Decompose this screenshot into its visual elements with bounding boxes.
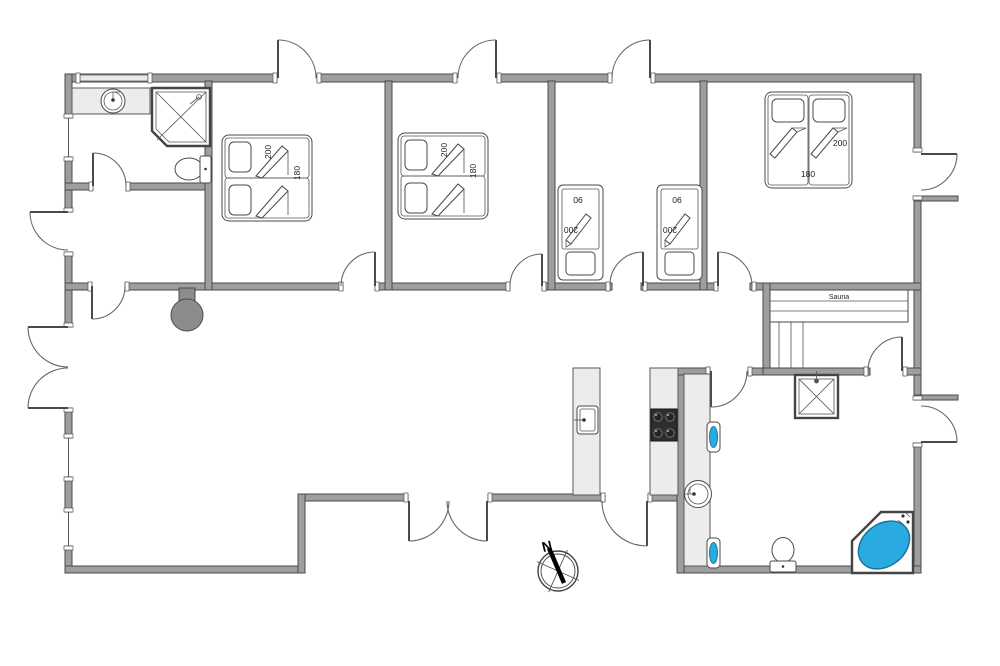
toilet-icon xyxy=(175,156,211,183)
wood-stove-icon xyxy=(171,288,203,331)
door-terrace-double-bottom xyxy=(28,368,68,408)
compass-rose: N xyxy=(528,537,589,601)
wall-basin-icon xyxy=(707,538,720,568)
corner-shower-icon xyxy=(152,88,210,146)
compass-needle xyxy=(549,548,564,583)
pillow xyxy=(665,252,694,275)
single1-length-label: 200 xyxy=(564,225,578,235)
pillow xyxy=(566,252,595,275)
double-bed-2: 200 180 xyxy=(398,133,488,219)
door-bathroom-top xyxy=(93,153,126,186)
bed2-length-label: 200 xyxy=(439,143,449,157)
pillow xyxy=(813,99,845,122)
door-patio-double-left xyxy=(409,501,449,541)
door-entry-exterior xyxy=(30,212,68,250)
pillow xyxy=(229,142,251,172)
sauna-steps xyxy=(779,322,803,368)
door-patio-single xyxy=(602,501,647,546)
door-annex-exterior xyxy=(612,40,650,78)
single-bed-1: 90 200 xyxy=(558,185,603,280)
door-living-from-hall xyxy=(92,286,125,319)
master-width-label: 180 xyxy=(801,169,815,179)
door-master-exterior xyxy=(921,154,957,190)
sauna: Sauna xyxy=(770,290,908,368)
bed2-width-label: 180 xyxy=(468,164,478,178)
door-patio-double-right xyxy=(447,501,487,541)
pillow xyxy=(229,185,251,215)
master-double-bed: 200 180 xyxy=(765,92,852,188)
pillow xyxy=(405,183,427,213)
stove-icon xyxy=(651,409,677,441)
pillow xyxy=(405,140,427,170)
door-bedroom2 xyxy=(510,254,542,286)
kitchen-sink-icon xyxy=(574,406,598,434)
sink-icon xyxy=(101,89,125,113)
floor-plan-canvas: 200 180 200 180 90 200 90 200 xyxy=(0,0,1000,666)
corner-bathtub-icon xyxy=(849,511,919,579)
door-annex xyxy=(610,252,643,286)
door-bedroom2-exterior xyxy=(458,40,496,78)
wall-basin-icon xyxy=(707,422,720,452)
kitchen xyxy=(573,368,678,495)
door-terrace-double-top xyxy=(28,327,68,367)
floor-plan: 200 180 200 180 90 200 90 200 xyxy=(0,0,1000,666)
double-bed-1: 200 180 xyxy=(222,135,312,221)
toilet-icon xyxy=(770,538,796,573)
bed1-width-label: 180 xyxy=(292,166,302,180)
bed1-length-label: 200 xyxy=(263,145,273,159)
door-bedroom1-exterior xyxy=(278,40,316,78)
round-sink-icon xyxy=(684,481,712,508)
compass-north-label: N xyxy=(540,537,554,555)
door-sauna xyxy=(868,337,902,371)
door-bedroom1 xyxy=(341,252,375,286)
pillow xyxy=(772,99,804,122)
door-bathroom-lower xyxy=(711,371,747,407)
single1-width-label: 90 xyxy=(573,195,583,205)
bathroom-counter xyxy=(684,374,710,566)
single2-width-label: 90 xyxy=(672,195,682,205)
single2-length-label: 200 xyxy=(663,225,677,235)
single-bed-2: 90 200 xyxy=(657,185,702,280)
master-length-label: 200 xyxy=(833,138,847,148)
door-bathroom-exterior xyxy=(921,406,957,442)
sauna-label: Sauna xyxy=(829,294,849,301)
shower-icon xyxy=(795,371,838,418)
door-master-bedroom xyxy=(718,252,752,286)
bathroom-lower xyxy=(684,371,919,579)
window xyxy=(80,75,148,81)
